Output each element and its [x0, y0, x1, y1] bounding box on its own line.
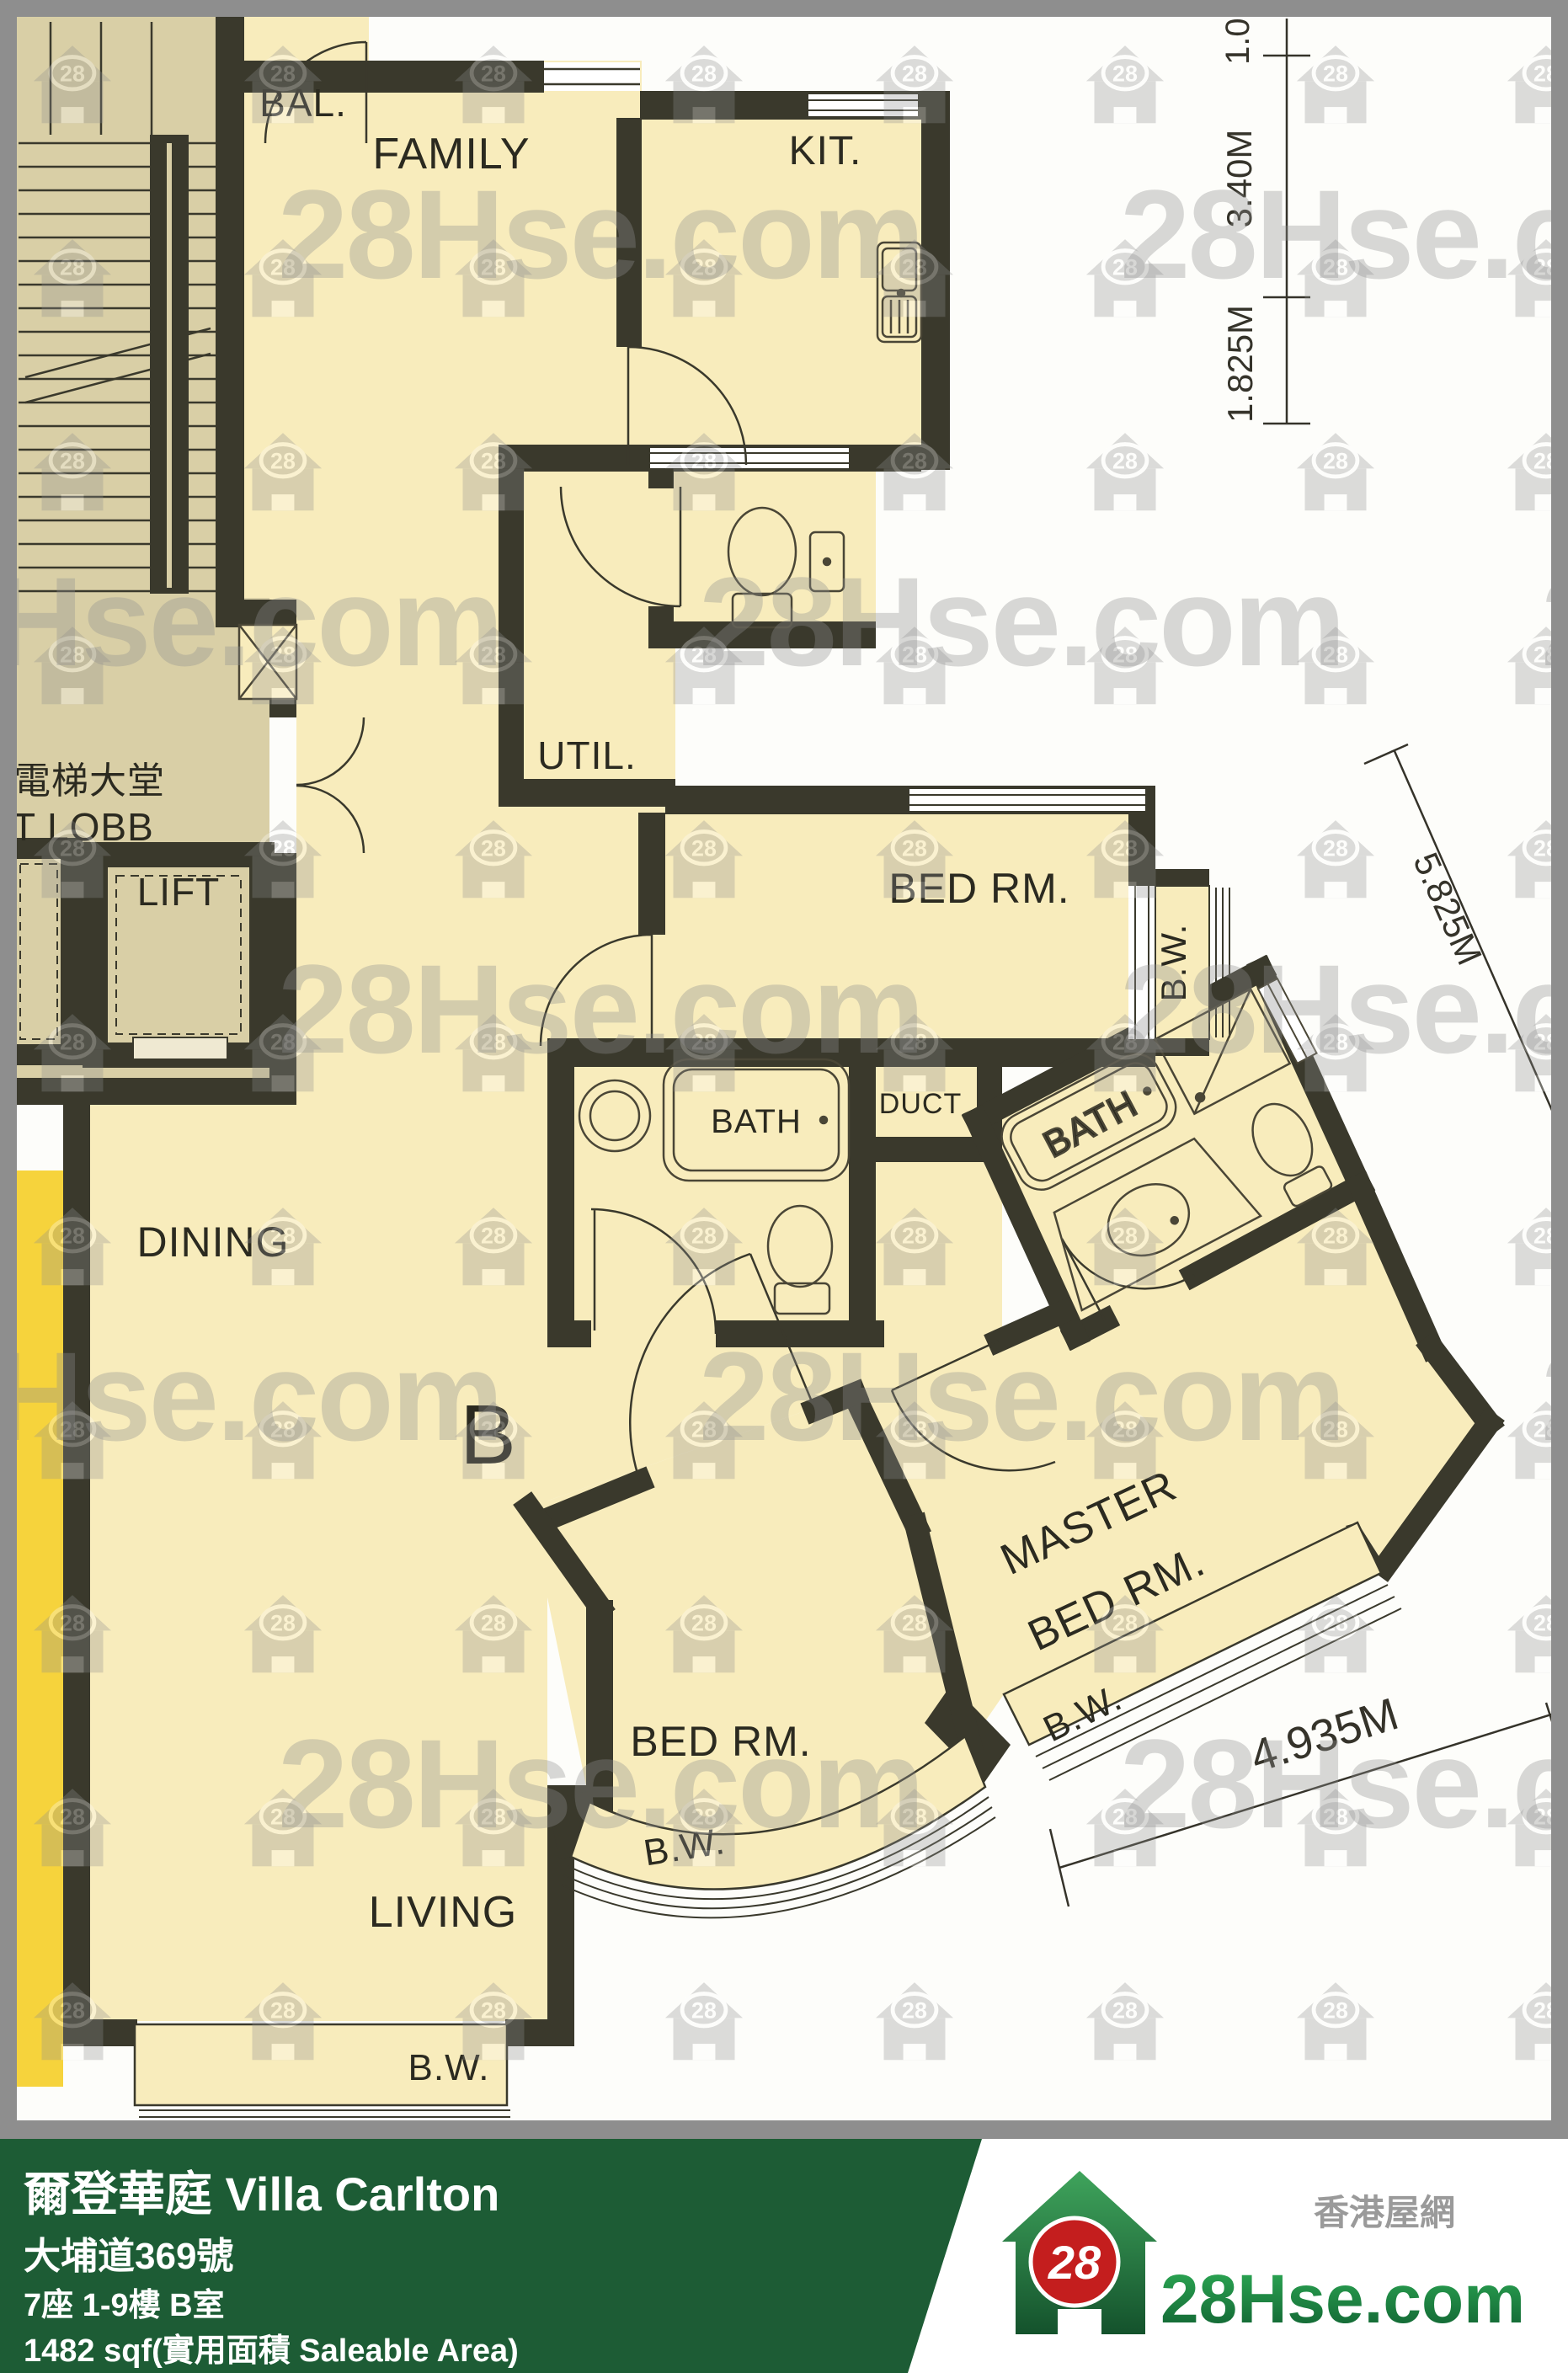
watermark-text: 28Hse.com [699, 551, 1343, 692]
watermark-text: 28Hse.com [0, 1325, 501, 1467]
logo-site-name-zh: 香港屋網 [1314, 2193, 1455, 2232]
saleable-area: 1482 sqf(實用面積 Saleable Area) [24, 2333, 519, 2369]
living-label: LIVING [369, 1888, 518, 1937]
building-address: 大埔道369號 [24, 2236, 233, 2277]
lift-label: LIFT [137, 870, 221, 914]
watermark-text: 28Hse.com [278, 163, 922, 305]
watermark-text: 28Hse.com [1120, 1713, 1568, 1854]
duct-label: DUCT [879, 1088, 962, 1120]
dim-right-lower: 1.825M [1220, 305, 1260, 423]
floor-plan-image: 28 [0, 0, 1568, 2373]
watermark-text: 28Hse.com [278, 938, 922, 1080]
lobby-label-zh: 電梯大堂 [13, 760, 165, 802]
logo-brand-text: 28Hse.com [1160, 2261, 1525, 2338]
bath1-label: BATH [711, 1103, 802, 1140]
watermark-text: 28Hse.com [1120, 163, 1568, 305]
logo-badge-text: 28 [1048, 2236, 1101, 2289]
unit-info: 7座 1-9樓 B室 [24, 2287, 225, 2323]
watermark-text: 28Hse.com [0, 551, 501, 692]
watermark-text: 28Hse.com [699, 1325, 1343, 1467]
watermark-text: 28Hse.com [1120, 938, 1568, 1080]
watermark-text: 28Hse.com [278, 1713, 922, 1854]
screenshot-root: 28 [0, 0, 1568, 2373]
building-name: 爾登華庭 Villa Carlton [23, 2168, 499, 2221]
utility-label: UTIL. [537, 733, 636, 777]
